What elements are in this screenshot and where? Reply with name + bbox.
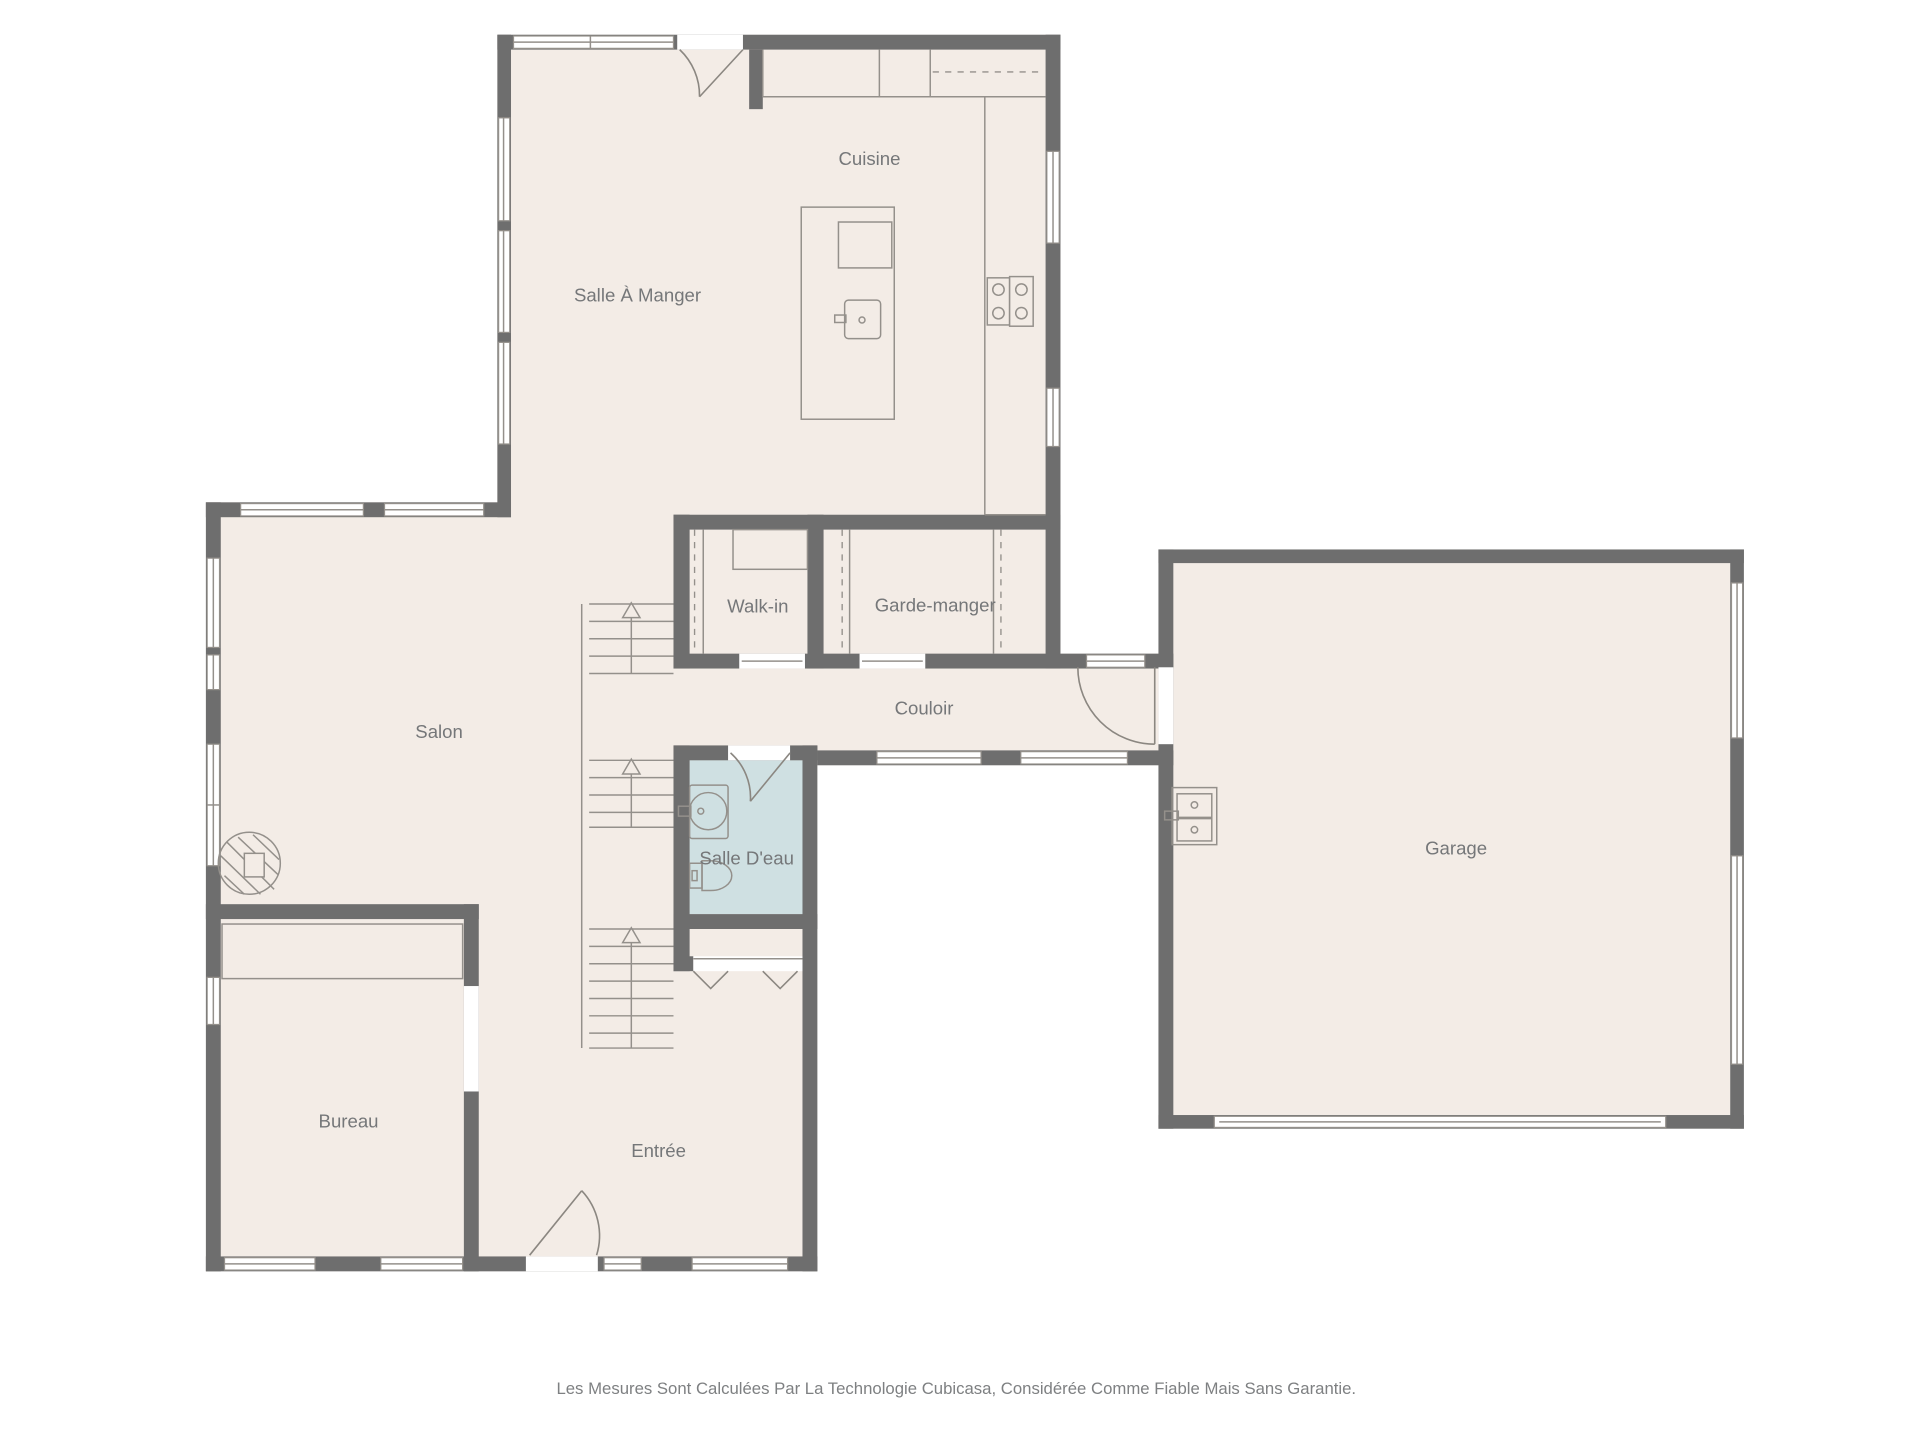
room-label-garage: Garage — [1425, 838, 1487, 859]
room-label-salon: Salon — [415, 721, 463, 742]
room-label-walk-in: Walk-in — [727, 596, 788, 617]
bureau-door-opening — [464, 986, 479, 1091]
disclaimer-text: Les Mesures Sont Calculées Par La Techno… — [556, 1379, 1356, 1398]
room-label-salle-deau: Salle D'eau — [699, 847, 794, 868]
floorplan-page: Cuisine Salle À Manger Walk-in Garde-man… — [0, 0, 1920, 1440]
window — [513, 36, 673, 48]
garde-manger-couloir-opening — [860, 654, 926, 669]
room-label-cuisine: Cuisine — [838, 148, 900, 169]
room-label-bureau: Bureau — [319, 1110, 379, 1131]
bathroom-door-opening — [728, 745, 790, 760]
room-fills — [206, 35, 1744, 1272]
stove-icon — [987, 277, 1033, 327]
garage-overhead-door — [1214, 1116, 1665, 1127]
room-label-salle-a-manger: Salle À Manger — [574, 284, 701, 305]
front-door-opening — [526, 1256, 598, 1271]
garage-door-opening — [1158, 667, 1173, 744]
room-label-entree: Entrée — [631, 1140, 686, 1161]
walkin-couloir-opening — [739, 654, 805, 669]
dining-door-opening — [677, 35, 743, 50]
floorplan-canvas: Cuisine Salle À Manger Walk-in Garde-man… — [0, 0, 1920, 1440]
room-label-couloir: Couloir — [895, 697, 954, 718]
room-label-garde-manger: Garde-manger — [875, 594, 996, 615]
